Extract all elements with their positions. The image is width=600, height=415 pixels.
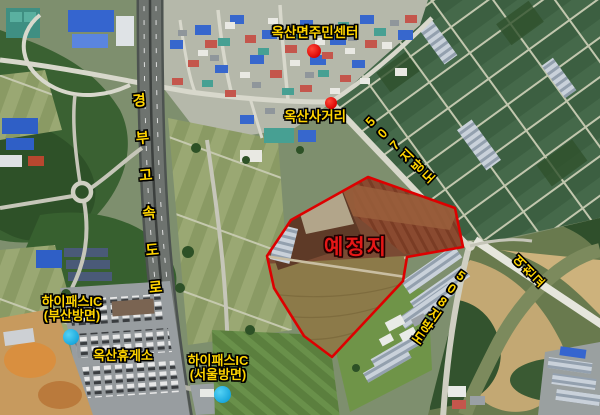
label-hipass-seoul-line1: 하이패스IC [188,354,249,368]
label-hipass-busan-line1: 하이패스IC [42,295,103,309]
label-hipass-busan-line2: (부산방면) [42,309,103,323]
hipass-seoul-marker-dot [214,386,231,403]
label-planned-site: 예정지 [324,231,388,261]
label-rest-area: 옥산휴게소 [93,349,153,363]
label-hipass-seoul-line2: (서울방면) [188,368,249,382]
satellite-map: 옥산면주민센터 옥산사거리 507지방도 경부고속도로 하이패스IC (부산방면… [0,0,600,415]
label-community-center: 옥산면주민센터 [272,26,359,41]
hipass-busan-marker-dot [63,329,79,345]
intersection-marker-dot [325,97,337,109]
satellite-basemap [0,0,600,415]
community-center-marker-dot [307,44,321,58]
label-hipass-busan: 하이패스IC (부산방면) [42,295,103,323]
label-hipass-seoul: 하이패스IC (서울방면) [188,354,249,382]
label-intersection: 옥산사거리 [284,110,346,125]
